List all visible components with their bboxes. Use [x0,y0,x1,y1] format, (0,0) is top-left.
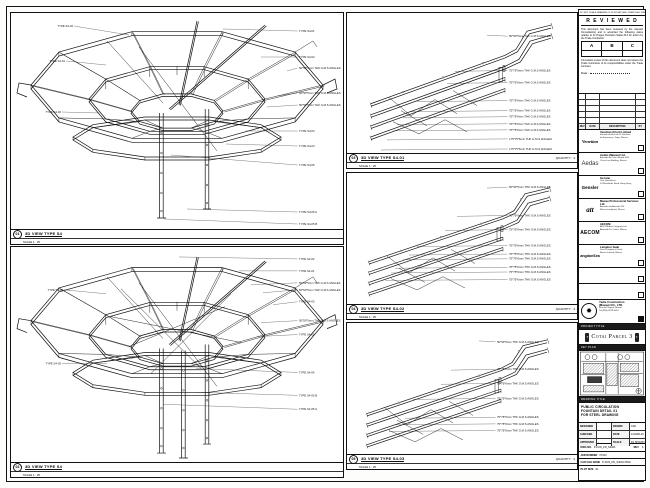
annotation-label: TYPE S4-05 B [299,393,317,397]
status-checkbox [638,145,644,151]
leader-line [403,117,508,118]
leader-line [287,68,298,71]
annotation-label: 75*75*6mm THK G.M.S ANGLES [497,422,539,426]
checked-label: CHECKED [579,431,597,438]
consultant-block-1: Aedas Aedas (Macau) Ltd. Avenida da Prai… [579,153,645,176]
annotation-label: 75*75*6mm THK G.M.S ANGLES [497,429,539,433]
empty-consultant-slot [579,268,645,284]
annotation-label: TYPE S4-02 [299,55,315,59]
leader-line [403,259,508,260]
leader-line [395,424,496,425]
cad-file-label: CAD FILE NAME [581,461,601,464]
annotation-label: 75*75*6mm THK G.M.S ANGLES [509,228,551,232]
status-checkbox [638,276,644,282]
leader-line [273,302,298,305]
leader-line [163,404,298,409]
key-plan-drawing [579,351,645,396]
view-label-05: 05 3D VIEW TYPE S4-03 QUANTITY : 4 SCALE… [347,454,577,469]
contractor-logo: ✸ [581,303,597,319]
leader-line [66,61,106,65]
leader-line [409,111,508,112]
view-label-03: 03 3D VIEW TYPE S4-01 QUANTITY : 4 SCALE… [347,153,577,168]
annotation-label: 75*75*6mm THK G.M.S ANGLES [509,115,551,119]
view-label-02: 02 3D VIEW TYPE S4 SCALE 1 : 25 [11,462,343,477]
view-panel-01: TYPE S4-02TYPE S4-01TYPE S4-02TYPE S4-01… [10,12,344,245]
consultant-list: Venetian Venetian Orient Limited Estrada… [579,130,645,268]
annotation-label: L75*75*6mm THK G.M.S ANGLES [509,147,552,151]
leader-line [196,368,298,372]
leader-line [261,321,298,323]
annotation-label: 75*75*6mm THK G.M.S ANGLES [497,381,539,385]
consultant-logo: AECOM [580,223,600,243]
annotation-label: TYPE S4-03 [299,300,315,304]
annotation-label: 75*75*6mm THK G.M.S ANGLES [509,213,551,217]
banner-ornament-right: ✦ [635,333,639,342]
annotation-label: TYPE S4-02 [47,288,63,292]
annotation-label: TYPE S4-05 B [299,222,317,226]
annotation-label: 50*50*5mm THK G.M.S ANGLES [509,185,551,189]
annotation-label: 75*75*6mm THK G.M.S ANGLES [509,99,551,103]
view-title: 3D VIEW TYPE S4-02 [361,306,404,312]
approval-table: DESIGNED - DRAWN CAD CHECKED - DATE 14-M… [579,423,645,444]
annotation-label: TYPE S4-01 [299,29,315,33]
plot-size-value: A1 [595,468,598,471]
annotation-label: TYPE S4-05 [299,163,315,167]
leader-line [267,105,298,107]
annotation-label: TYPE S4-02 [45,110,61,114]
leader-line [387,139,508,140]
title-block-sidebar: DO NOT SCALE DRAWING. IF IN DOUBT, ASK. … [578,9,646,481]
view-panel-05: 50*50*5mm THK G.M.S ANGLES75*75*6mm THK … [346,322,578,470]
plot-size-label: PLOT SIZE [581,468,594,471]
annotation-label: 75*75*6mm THK G.M.S ANGLES [509,265,551,269]
banner-ornament-left: ✦ [585,333,589,342]
view-quantity: QUANTITY : 4 [556,457,575,461]
annotation-label: 50*50*5mm THK G.M.S ANGLES [299,66,341,70]
consultant-address-line: da Esperanca, Taipa, Macau [600,137,644,140]
annotation-label: TYPE S4-01 [299,269,315,273]
plot-size-row: PLOT SIZE A1 [579,466,645,473]
grade-c: C [623,42,642,50]
contractor-address-2: Tel (853) 2878 0000 [599,310,644,313]
leader-line [226,144,298,146]
review-date-line: Date : [581,70,643,75]
rev-value: A [642,446,644,449]
grade-a: A [582,42,602,50]
leader-line [457,215,508,216]
job-number-row: JOB NUMBER 07103 [579,452,645,459]
annotation-label: TYPE S4-02 [57,24,73,28]
annotation-label: TYPE S4-05 A [299,407,317,411]
consultant-address-line: Macau Limited, Macau [600,252,644,255]
leader-line [417,246,508,247]
view-panel-02: TYPE S4-02TYPE S4-03TYPE S4-02TYPE S4-01… [10,246,344,478]
designed-value: - [597,423,612,430]
drawn-label: DRAWN [612,423,630,430]
consultant-logo: LangdonSeah [580,246,600,266]
angle-bundle-drawing-3: 50*50*5mm THK G.M.S ANGLES75*75*6mm THK … [347,323,577,455]
annotation-label: 50*50*5mm THK G.M.S ANGLES [299,288,341,292]
status-checkbox [638,191,644,197]
annotation-label: 75*75*6mm THK G.M.S ANGLES [509,122,551,126]
annotation-label: 75*75*6mm THK G.M.S ANGLES [509,270,551,274]
job-number-value: 07103 [599,454,606,457]
date-value: 14-MAR-16 [630,431,645,438]
leader-line [487,35,508,36]
leader-line [445,230,508,231]
canopy-structure-drawing-2: TYPE S4-02TYPE S4-03TYPE S4-02TYPE S4-01… [11,247,343,463]
designed-label: DESIGNED [579,423,597,430]
status-checkbox [638,316,644,322]
annotation-label: 75*75*6mm THK G.M.S ANGLES [509,257,551,261]
review-stamp: R E V I E W E D This document has been r… [579,16,645,94]
view-scale: SCALE 1 : 25 [359,164,376,168]
status-checkbox [638,260,644,266]
leader-line [451,369,496,370]
grade-b: B [602,42,622,50]
annotation-label: 75*75*6mm THK G.M.S ANGLES [509,128,551,132]
status-checkbox [638,292,644,298]
status-checkbox [638,214,644,220]
annotation-label: TYPE S4-02 [299,333,315,337]
revision-grid: REVDATEDESCRIPTIONBY [579,94,645,130]
annotation-label: TYPE S4-03 [299,129,315,133]
view-scale: SCALE 1 : 25 [23,473,40,477]
view-title: 3D VIEW TYPE S4-03 [361,456,404,462]
view-panel-03: 50*50*5mm THK G.M.S ANGLES75*75*6mm THK … [346,12,578,169]
annotation-label: 75*75*6mm THK G.M.S ANGLES [509,244,551,248]
revision-header-row: REVDATEDESCRIPTIONBY [579,124,645,129]
consultant-address-line: China Law Building, Macau [600,160,644,163]
canopy-structure-drawing-1: TYPE S4-02TYPE S4-01TYPE S4-02TYPE S4-01… [11,13,343,230]
annotation-label: TYPE S4-03 [45,361,61,365]
leader-line [381,149,508,150]
view-number-bubble: 01 [13,230,22,239]
annotation-label: 75*75*6mm THK G.M.S ANGLES [497,396,539,400]
consultant-logo: att [580,200,600,220]
consultant-block-4: AECOM AECOM AECOM Asia Company Ltd.Alame… [579,222,645,245]
drawn-value: CAD [630,423,645,430]
annotation-label: 50*50*5mm THK G.M.S ANGLES [299,91,341,95]
leader-line [487,187,508,188]
dwg-number-row: DWG NO. P-FUN_FD_S4001 REV A [579,444,645,452]
annotation-label: 75*75*6mm THK G.M.S ANGLES [509,109,551,113]
grade-row: A B C [581,41,643,51]
consultant-logo: Gensler [580,177,600,197]
date-label: DATE [612,431,630,438]
empty-consultant-slots [579,268,645,300]
annotation-label: 75*75*6mm THK G.M.S ANGLES [509,252,551,256]
key-plan [579,351,645,397]
view-number-bubble: 05 [349,455,358,464]
annotation-label: 75*75*6mm THK G.M.S ANGLES [509,278,551,282]
view-title: 3D VIEW TYPE S4 [25,464,62,470]
consultant-block-0: Venetian Venetian Orient Limited Estrada… [579,130,645,153]
rev-label: REV [634,446,639,449]
view-number-bubble: 02 [13,463,22,472]
leader-line [389,430,496,431]
annotation-label: L75*75*6mm THK G.M.S ANGLES [509,137,552,141]
consultant-address-line: Alameda Dr. Carlos, Macau [600,229,644,232]
view-scale: SCALE 1 : 25 [359,465,376,469]
view-number-bubble: 03 [349,154,358,163]
annotation-label: TYPE S4-04 [299,370,315,374]
view-scale: SCALE 1 : 25 [359,315,376,319]
view-panel-04: 50*50*5mm THK G.M.S ANGLES75*75*6mm THK … [346,172,578,320]
cad-file-value: P-FUN_FD_S4001.DWG [602,461,631,464]
annotation-label: 75*75*6mm THK G.M.S ANGLES [509,80,551,84]
leader-line [64,290,106,294]
review-stamp-text-2: Consultant review of this document does … [581,59,643,68]
project-name: Cotai Parcel 3 [591,334,632,340]
view-quantity: QUANTITY : 4 [556,156,575,160]
review-stamp-title: R E V I E W E D [581,17,643,26]
empty-consultant-slot [579,284,645,299]
view-number-bubble: 04 [349,305,358,314]
view-title: 3D VIEW TYPE S4-01 [361,155,404,161]
annotation-label: TYPE S4-01 [49,59,65,63]
leader-line [479,341,496,342]
grade-check-row [581,51,643,57]
annotation-label: 50*50*5mm THK G.M.S ANGLES [299,281,341,285]
status-checkbox [638,168,644,174]
status-checkbox [638,237,644,243]
review-stamp-text-1: This document has been reviewed by the r… [581,28,643,40]
leader-line [447,82,508,83]
dwg-no-value: P-FUN_FD_S4001 [594,446,616,449]
leader-line [385,280,508,281]
angle-bundle-drawing-2: 50*50*5mm THK G.M.S ANGLES75*75*6mm THK … [347,173,577,305]
consultant-block-2: Gensler Gensler One Island East18 Westla… [579,176,645,199]
leader-line [251,283,298,285]
consultant-block-5: LangdonSeah Langdon Seah Davis Langdon &… [579,245,645,267]
leader-line [164,219,298,224]
drawing-title: PUBLIC CIRCULATION FOUNTAIN DETAIL 01 FO… [579,403,645,423]
consultant-address-line: Macau Landmark, Macau [600,209,644,212]
annotation-label: 75*75*6mm THK G.M.S ANGLES [497,367,539,371]
cad-file-row: CAD FILE NAME P-FUN_FD_S4001.DWG [579,459,645,466]
consultant-logo: Venetian [580,131,600,151]
annotation-label: 75*75*6mm THK G.M.S ANGLES [509,68,551,72]
annotation-label: TYPE S4-05 A [299,210,317,214]
contractor-block: ✸ Yadie Construction (Macau) CO., LTD. R… [579,300,645,324]
angle-bundle-drawing-1: 50*50*5mm THK G.M.S ANGLES75*75*6mm THK … [347,13,577,154]
leader-line [441,383,496,384]
annotation-label: 50*50*5mm THK G.M.S ANGLES [299,103,341,107]
consultant-address-line: 18 Westlands Road, Hong Kong [600,183,644,186]
annotation-label: TYPE S4-04 [299,144,315,148]
annotation-label: 75*75*6mm THK G.M.S ANGLES [497,415,539,419]
dwg-no-label: DWG NO. [581,446,592,449]
consultant-logo: Aedas [580,154,600,174]
view-scale: SCALE 1 : 25 [23,240,40,244]
consultant-block-3: att Macau Professional Services Ltd. Ave… [579,199,645,222]
job-number-label: JOB NUMBER [581,454,598,457]
annotation-label: 50*50*5mm THK G.M.S ANGLES [509,34,551,38]
leader-line [417,101,508,102]
annotation-label: 50*50*5mm THK G.M.S ANGLES [299,319,341,323]
leader-line [74,26,129,35]
checked-value: - [597,431,612,438]
annotation-label: TYPE S4-02 [299,257,315,261]
drawing-title-line-3: FOR STEEL DRAWING [581,413,643,417]
view-label-04: 04 3D VIEW TYPE S4-02 QUANTITY : 4 SCALE… [347,304,577,319]
leader-line [62,112,99,113]
view-title: 3D VIEW TYPE S4 [25,231,62,237]
view-quantity: QUANTITY : 4 [556,307,575,311]
leader-line [187,209,298,212]
view-label-01: 01 3D VIEW TYPE S4 SCALE 1 : 25 [11,229,343,244]
project-banner: ✦ Cotai Parcel 3 ✦ [579,330,645,345]
annotation-label: 50*50*5mm THK G.M.S ANGLES [497,340,539,344]
leader-line [413,398,496,399]
